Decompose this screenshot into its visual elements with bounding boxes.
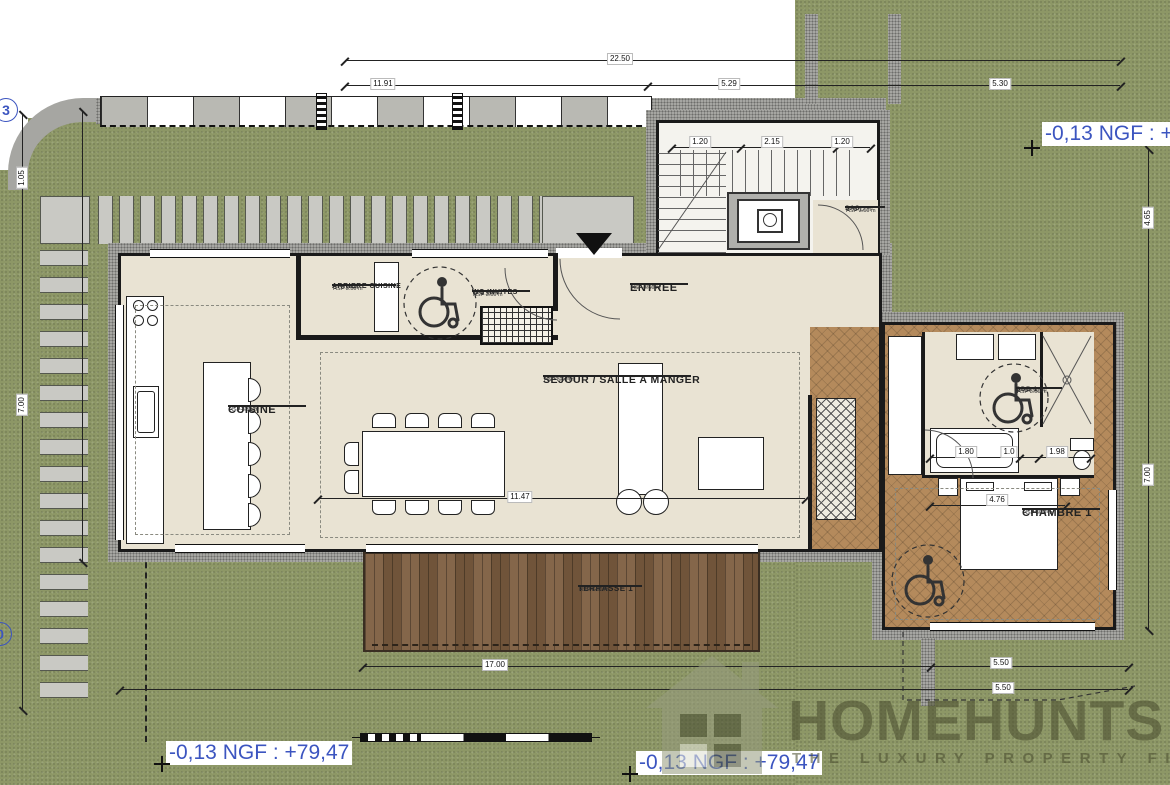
room-info-box: S : 5.04 m² HSP 3.50 m: [332, 284, 396, 286]
room-height: HSP 3.50 m: [544, 376, 574, 384]
room-height: HSP 3.50 m: [579, 586, 609, 594]
room-info-box: S : 65.26 m² HSP 3.50 m: [578, 585, 642, 587]
room-height: HSP 3.50 m: [473, 291, 503, 299]
stair-flight-top: [680, 150, 862, 196]
wc-grille-mat: [480, 306, 553, 345]
dim-label: 11.47: [507, 491, 532, 503]
dim-label: 22.50: [607, 53, 633, 65]
entrance-arrow-icon: [576, 233, 612, 255]
dim-label: 5.29: [718, 78, 740, 90]
bathroom-sink: [956, 334, 994, 360]
house-pane: [714, 744, 741, 767]
room-info-box: S : 58.52 m² HSP 3.50 m: [543, 375, 691, 377]
level-marker-text-bottomleft: -0,13 NGF : +79,47: [166, 741, 352, 765]
dim-label: 5.50: [990, 657, 1012, 669]
wall-wc-entree: [553, 253, 558, 311]
gate-post-right: [452, 93, 463, 130]
dim-label: 1.98: [1046, 446, 1068, 458]
boundary-dashed-line: [145, 552, 147, 742]
dim-label: 11.91: [370, 78, 395, 90]
level-marker-cross: [1024, 140, 1040, 156]
gate-post-left: [316, 93, 327, 130]
neighbor-wall-stub-right: [888, 14, 901, 104]
room-height: HSP 3.50 m: [1023, 509, 1053, 517]
boundary-marker-3: 3: [0, 98, 18, 122]
window-top-wc: [412, 249, 548, 258]
level-marker-cross: [622, 766, 638, 782]
room-height: HSP 3.50 m: [1017, 388, 1047, 396]
driveway-slab-strip: [100, 96, 652, 127]
dim-label: 4.65: [1142, 207, 1154, 229]
glazing-bedroom: [930, 622, 1095, 631]
dim-line-overall: [345, 60, 1120, 61]
corridor-closet: [816, 398, 856, 520]
house-body: [662, 708, 762, 774]
bathroom-sink: [998, 334, 1036, 360]
window-left-kitchen: [115, 305, 124, 540]
room-info-box: S : 21.8 m² HSP 3.50 m: [1022, 508, 1100, 510]
arriere-closet: [374, 262, 399, 332]
stepping-stones-path: [40, 250, 88, 702]
dim-label: 1.20: [689, 136, 711, 148]
bathroom-wardrobe: [888, 336, 922, 475]
room-height: HSP 3.50 m: [631, 284, 661, 292]
dim-label: 5.30: [989, 78, 1011, 90]
house-pane-light: [680, 744, 707, 767]
glazing-terrace: [366, 544, 758, 553]
terrace-deck: [363, 552, 760, 652]
dim-line-left-inner: [82, 112, 83, 562]
room-info-box: S : 3.12 m² HSP 3.50 m: [845, 206, 885, 208]
dim-label: 4.76: [986, 494, 1008, 506]
dim-label: 17.00: [482, 659, 508, 671]
grass-area-left: [0, 170, 30, 785]
wall-cuisine-arriere: [296, 253, 301, 337]
terrace-dashed-edge: [372, 644, 750, 646]
homehunts-tagline: THE LUXURY PROPERTY FINDERS: [792, 750, 1170, 767]
dim-label: 1.05: [16, 167, 28, 189]
floor-plan-canvas: CUISINE S : 23.51 m² HSP 3.50 m ARRIERE …: [0, 0, 1170, 785]
window-top-kitchen: [150, 249, 290, 258]
window-bottom-kitchen: [175, 544, 305, 553]
homehunts-wordmark: HOMEHUNTS: [788, 688, 1164, 754]
dim-label: 1.80: [955, 446, 977, 458]
homehunts-house-icon: [642, 656, 782, 778]
neighbor-wall-stub-left: [805, 14, 818, 104]
scale-bar-coarse: [420, 733, 592, 742]
dim-label: 7.00: [16, 394, 28, 416]
dim-label: 7.00: [1142, 464, 1154, 486]
dim-line-sejour: [318, 498, 805, 499]
window-right-bedroom: [1108, 490, 1117, 590]
room-info-box: S : 5.16 m² HSP 3.50 m: [630, 283, 688, 285]
room-info-box: S : 3.55 m² HSP 3.50 m: [472, 290, 530, 292]
room-height: HSP 3.50 m: [846, 207, 876, 215]
room-height: HSP 3.50 m: [333, 285, 363, 293]
house-pane: [680, 714, 707, 737]
room-info-box: S : 10.56 m² HSP 3.50 m: [1016, 387, 1062, 389]
dim-label: 1.20: [831, 136, 853, 148]
dim-label: 2.15: [761, 136, 783, 148]
elevator-circle-icon: [763, 213, 777, 227]
room-info-box: S : 23.51 m² HSP 3.50 m: [228, 405, 306, 407]
dim-label: 1.0: [1000, 446, 1017, 458]
wall-bathroom-left: [922, 332, 925, 478]
level-marker-cross: [154, 756, 170, 772]
level-marker-text-topright: -0,13 NGF : +79,47: [1042, 122, 1170, 146]
ceiling-dashed-cuisine: [135, 305, 290, 535]
paving-slab-row: [98, 196, 542, 244]
wall-sejour-corridor: [808, 395, 812, 552]
room-height: HSP 3.50 m: [229, 406, 259, 414]
house-roof: [646, 656, 778, 708]
house-pane: [714, 714, 741, 737]
scale-bar-fine: [360, 733, 420, 742]
wall-shower: [1040, 332, 1043, 427]
